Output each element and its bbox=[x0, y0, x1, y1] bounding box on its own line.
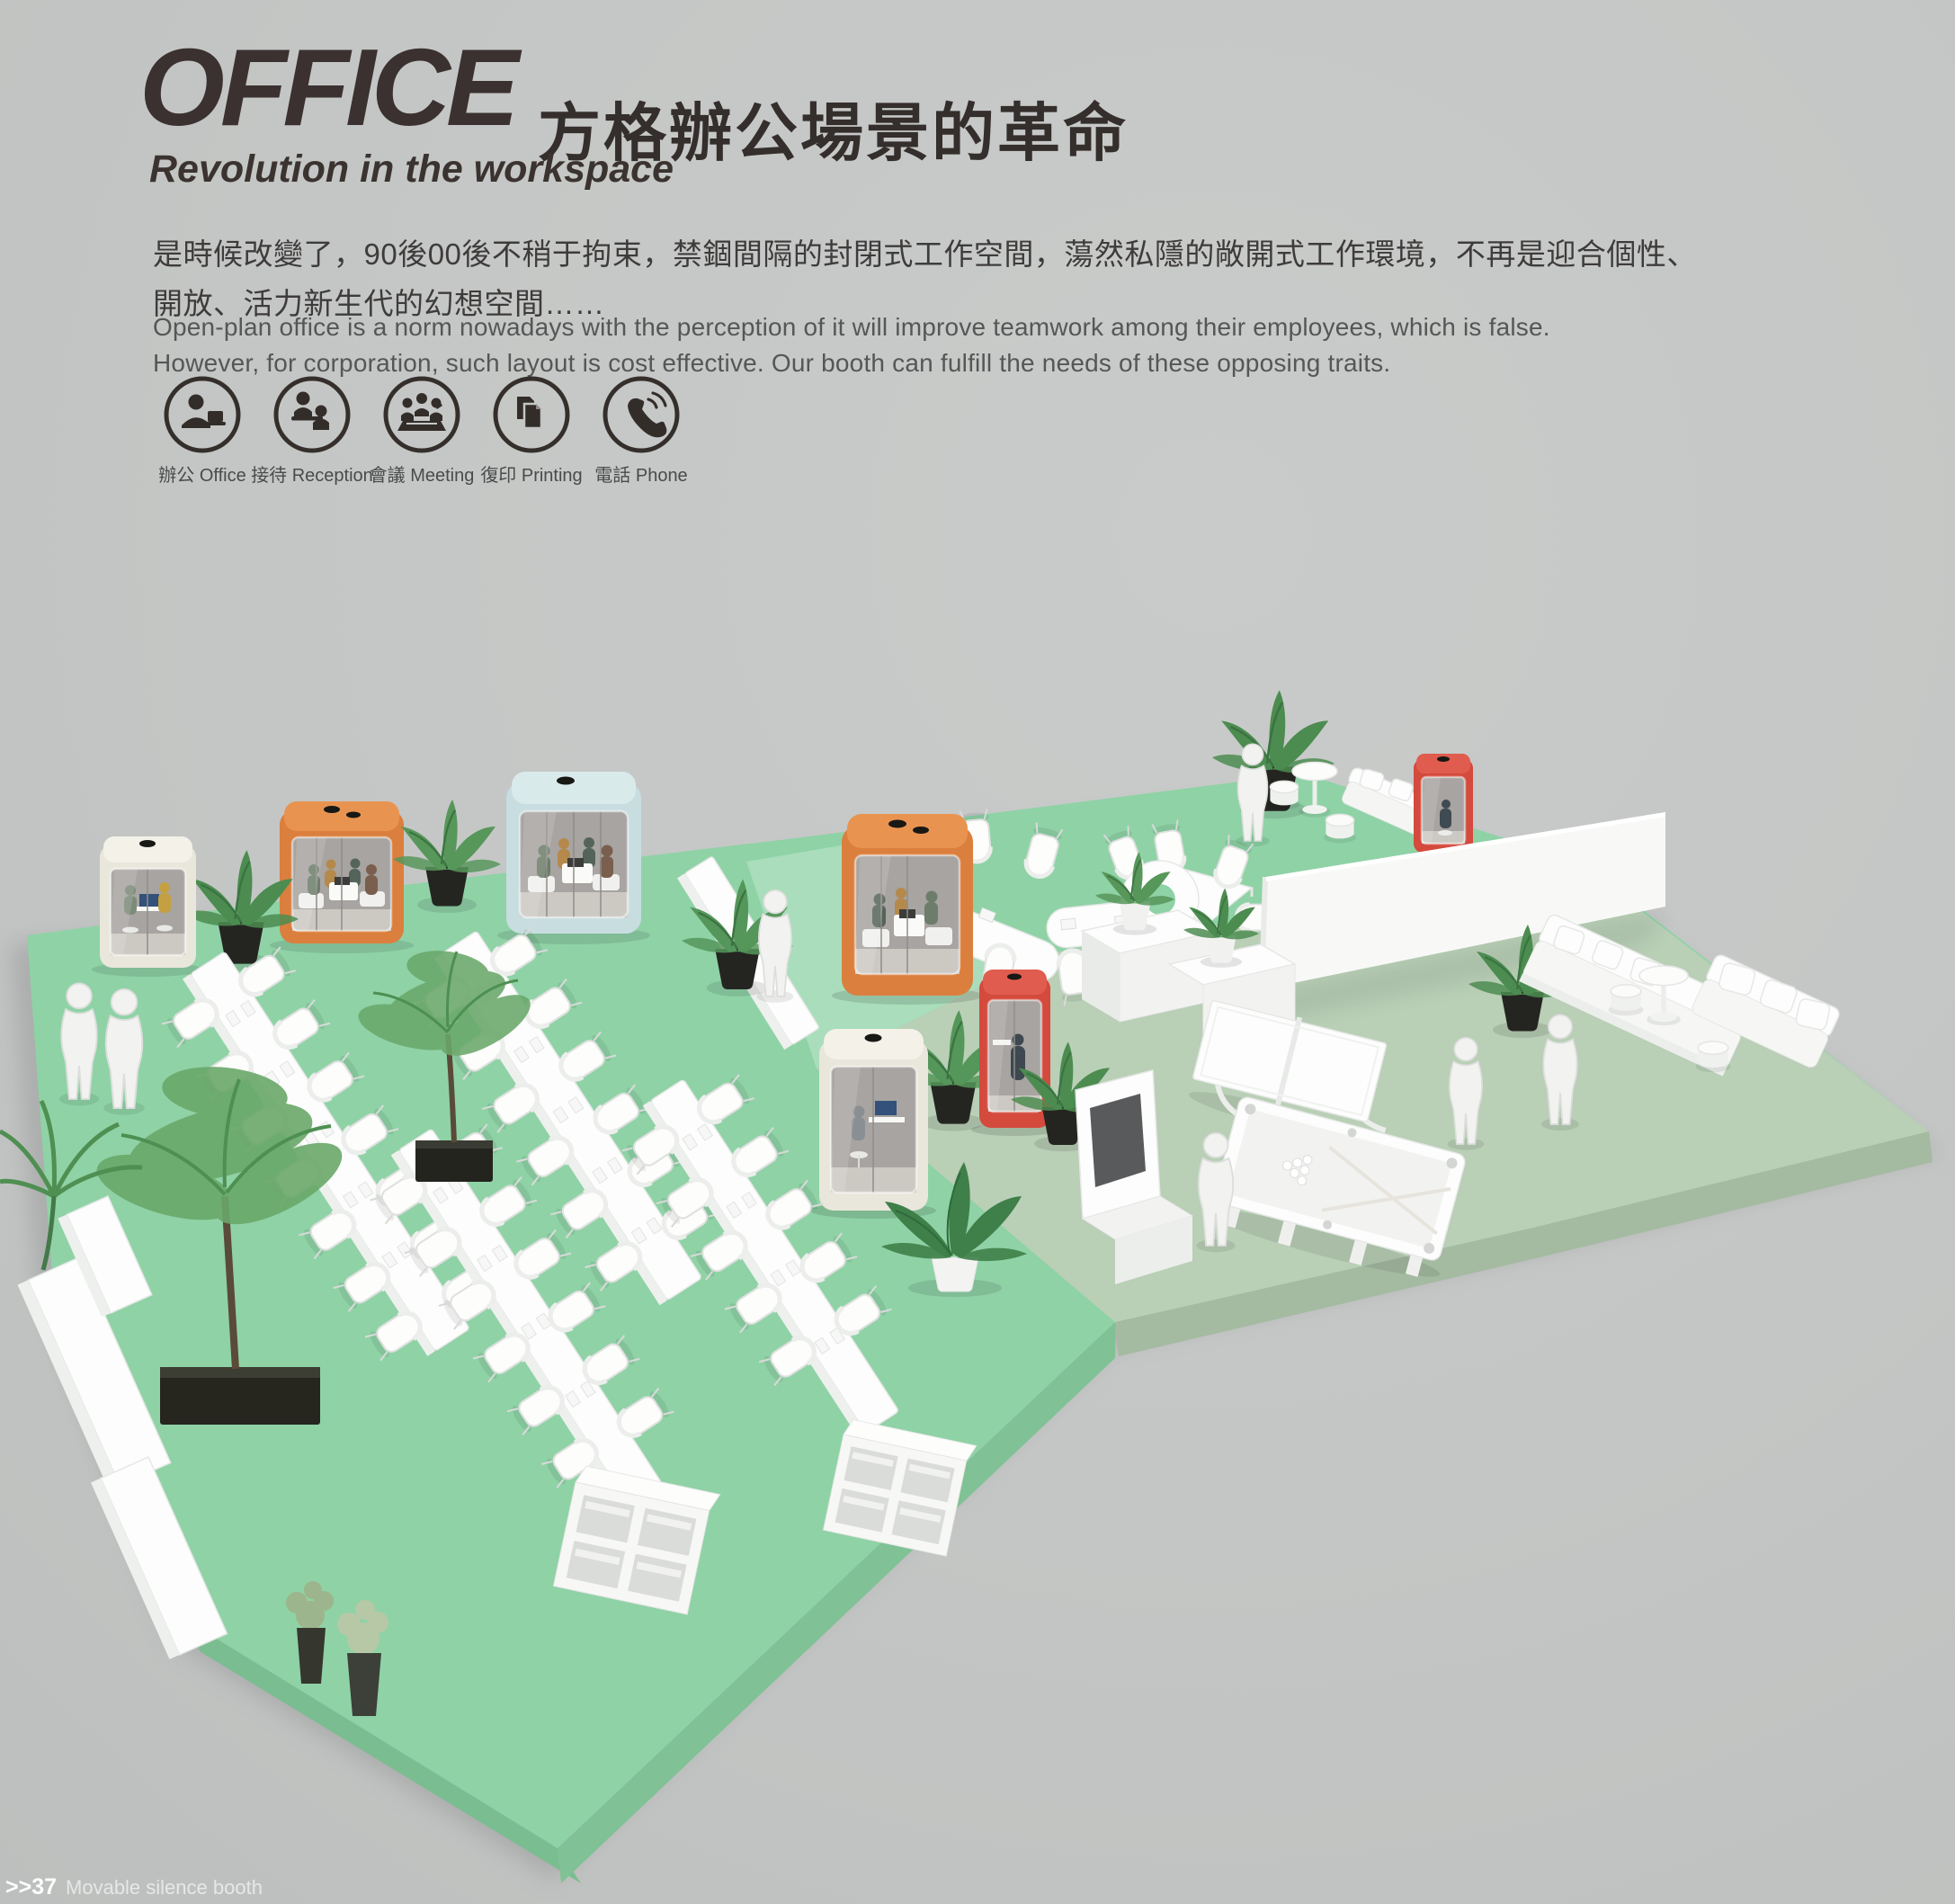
intro-en-line1: Open-plan office is a norm nowadays with… bbox=[153, 313, 1550, 341]
stool bbox=[1696, 1041, 1731, 1072]
feature-label: 復印 Printing bbox=[480, 460, 582, 487]
reception-icon bbox=[272, 374, 353, 455]
feature-label: 接待 Reception bbox=[251, 460, 373, 487]
meeting-icon bbox=[381, 374, 462, 455]
meeting-booth-orange bbox=[270, 801, 414, 953]
page-subtitle: Revolution in the workspace bbox=[149, 147, 674, 192]
feature-office: 辦公 Office bbox=[147, 374, 257, 487]
feature-phone: 電話 Phone bbox=[586, 374, 696, 487]
phone-icon bbox=[601, 374, 682, 455]
intro-cn-line1: 是時候改變了，90後00後不稍于拘束，禁錮間隔的封閉式工作空間，蕩然私隱的敞開式… bbox=[153, 237, 1697, 271]
footer-index: >>37 bbox=[5, 1874, 57, 1900]
meeting-booth-orange-center bbox=[832, 814, 983, 1005]
feature-label: 辦公 Office bbox=[158, 460, 245, 487]
feature-icon-row: 辦公 Office 接待 Reception bbox=[147, 374, 696, 487]
page-title: OFFICE bbox=[139, 32, 514, 142]
feature-printing: 復印 Printing bbox=[477, 374, 586, 487]
page-footer: >>37Movable silence booth bbox=[5, 1874, 263, 1900]
phone-booth-cream bbox=[92, 836, 203, 977]
feature-label: 會議 Meeting bbox=[370, 460, 475, 487]
footer-label: Movable silence booth bbox=[66, 1876, 263, 1899]
intro-en-line2: However, for corporation, such layout is… bbox=[153, 349, 1390, 377]
feature-reception: 接待 Reception bbox=[257, 374, 367, 487]
stool bbox=[1609, 985, 1644, 1015]
meeting-booth-blue bbox=[497, 772, 650, 944]
intro-paragraph-en: Open-plan office is a norm nowadays with… bbox=[153, 309, 1861, 381]
printing-icon bbox=[491, 374, 572, 455]
feature-meeting: 會議 Meeting bbox=[367, 374, 477, 487]
office-icon bbox=[162, 374, 243, 455]
work-booth-cream-center bbox=[810, 1029, 936, 1219]
feature-label: 電話 Phone bbox=[594, 460, 687, 487]
brochure-page: OFFICE 方格辦公場景的革命 Revolution in the works… bbox=[0, 0, 1955, 1904]
